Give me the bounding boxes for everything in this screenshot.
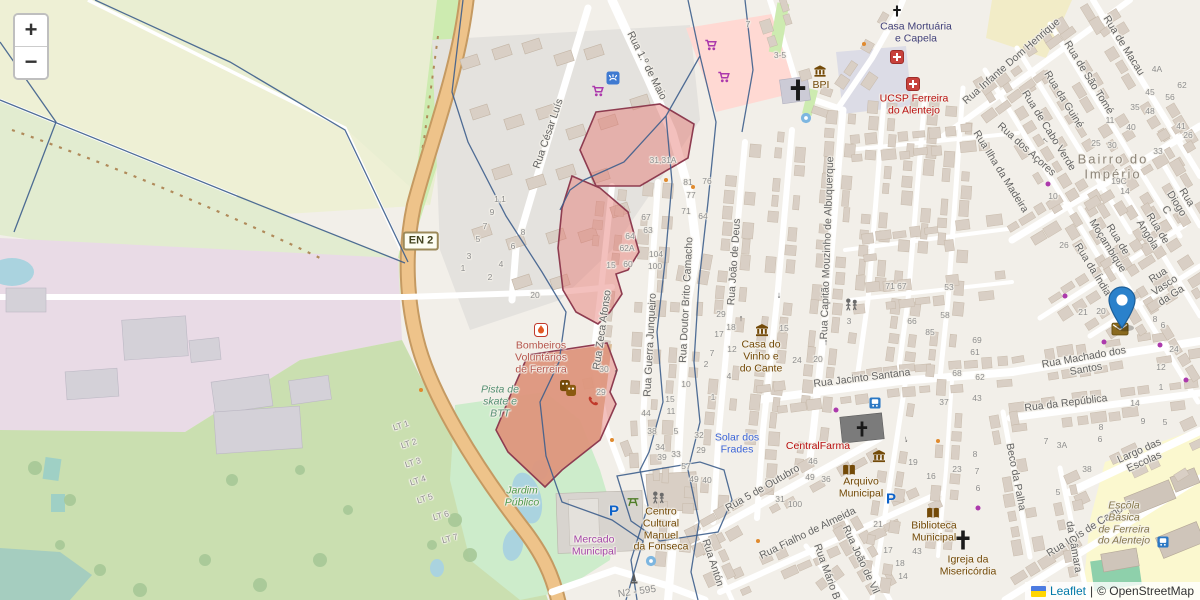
osm-link[interactable]: © OpenStreetMap bbox=[1097, 584, 1194, 598]
location-marker[interactable] bbox=[1104, 286, 1140, 332]
zoom-out-button[interactable]: − bbox=[15, 46, 47, 78]
zoom-control: + − bbox=[13, 13, 49, 80]
map-canvas[interactable]: Rua César LuísRua 1.º de MaioRua Zeca Af… bbox=[0, 0, 1200, 600]
attribution-separator: | bbox=[1090, 584, 1093, 598]
leaflet-link[interactable]: Leaflet bbox=[1050, 584, 1086, 598]
map-tiles bbox=[0, 0, 1200, 600]
zoom-in-button[interactable]: + bbox=[15, 15, 47, 46]
ukraine-flag-icon bbox=[1031, 586, 1046, 597]
attribution: Leaflet | © OpenStreetMap bbox=[1025, 582, 1200, 600]
